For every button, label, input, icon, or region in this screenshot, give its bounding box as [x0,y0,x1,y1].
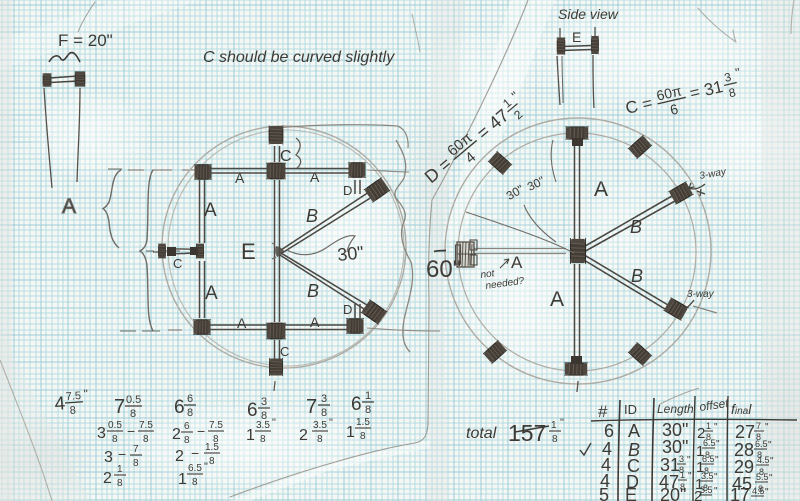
svg-text:4.5: 4.5 [757,455,770,465]
svg-text:A: A [310,169,320,185]
svg-text:": " [714,486,718,497]
svg-text:20": 20" [660,485,686,501]
svg-text:8: 8 [112,434,118,445]
svg-text:": " [688,471,692,482]
svg-text:B: B [630,217,642,237]
svg-text:0.5: 0.5 [108,420,122,431]
svg-text:6: 6 [184,421,190,432]
svg-text:7.5: 7.5 [209,420,223,431]
svg-text:": " [770,456,774,467]
svg-text:Side view: Side view [558,6,619,22]
svg-text:A: A [550,288,564,311]
svg-text:1: 1 [117,464,123,475]
svg-text:3.5: 3.5 [701,471,714,481]
svg-text:3.5: 3.5 [700,485,713,495]
svg-text:−: − [191,445,199,461]
svg-text:8: 8 [192,477,198,488]
svg-text:total: total [466,425,497,442]
svg-text:8: 8 [360,431,366,442]
svg-text:7.5: 7.5 [139,420,153,431]
svg-text:8: 8 [69,405,76,417]
svg-text:3.5: 3.5 [256,420,270,431]
svg-text:−: − [197,423,205,439]
svg-text:": " [204,461,208,473]
svg-text:5: 5 [599,485,609,501]
svg-text:E: E [241,239,256,264]
svg-text:3: 3 [679,454,684,464]
svg-text:Length: Length [657,402,694,416]
svg-text:4.5: 4.5 [752,486,765,496]
svg-text:": " [714,472,718,483]
svg-text:3-way: 3-way [687,289,715,300]
svg-text:8: 8 [321,407,327,419]
svg-text:8: 8 [209,456,215,467]
svg-text:5.5: 5.5 [756,472,769,482]
svg-text:": " [765,422,769,433]
svg-text:B: B [307,281,319,301]
svg-text:A: A [511,253,523,272]
svg-text:1: 1 [178,471,187,488]
svg-text:0.5: 0.5 [126,394,141,406]
svg-text:30": 30" [662,437,688,457]
svg-text:8: 8 [187,407,193,419]
svg-text:C: C [280,344,289,359]
svg-text:E: E [572,29,581,45]
svg-text:1: 1 [346,424,355,441]
svg-text:D: D [343,183,352,198]
svg-text:B: B [306,206,318,226]
svg-text:8: 8 [260,434,266,445]
svg-text:A: A [237,315,247,331]
svg-text:": " [714,422,718,433]
svg-text:6.5: 6.5 [188,463,202,474]
svg-text:": " [716,439,720,450]
svg-text:8: 8 [133,458,139,469]
svg-text:3.5: 3.5 [313,420,327,431]
svg-text:6: 6 [187,393,193,405]
svg-text:": " [768,440,772,451]
svg-text:2: 2 [299,427,308,444]
svg-text:": " [272,417,276,429]
svg-text:B: B [631,266,643,286]
svg-text:27: 27 [735,422,755,442]
svg-text:": " [329,417,333,429]
svg-text:E: E [625,485,637,501]
svg-text:6.5: 6.5 [702,454,715,464]
svg-text:1: 1 [365,390,371,402]
svg-text:8: 8 [184,435,190,446]
svg-text:6.5: 6.5 [755,439,768,449]
svg-text:7: 7 [306,396,317,418]
svg-text:C: C [173,256,182,271]
svg-text:6: 6 [351,394,362,415]
svg-text:A: A [628,421,640,441]
svg-text:4: 4 [54,393,66,415]
svg-text:2: 2 [103,470,112,487]
svg-text:1: 1 [680,470,685,480]
svg-text:": " [765,487,769,498]
svg-text:3: 3 [321,393,327,405]
svg-text:1.5: 1.5 [205,442,219,453]
svg-text:D: D [343,302,352,317]
svg-text:A: A [310,314,320,330]
svg-text:7: 7 [133,444,139,455]
svg-text:": " [687,455,691,466]
svg-text:A: A [204,200,217,221]
svg-text:3: 3 [97,425,106,442]
svg-text:6: 6 [174,397,185,418]
svg-text:6.5: 6.5 [703,438,716,448]
svg-text:1: 1 [706,421,711,431]
svg-text:7: 7 [114,396,125,418]
svg-text:7.5: 7.5 [65,390,81,403]
svg-text:A: A [235,170,245,186]
svg-text:8: 8 [143,434,149,445]
svg-text:ID: ID [624,402,637,417]
svg-text:8: 8 [117,478,123,489]
svg-text:30": 30" [336,242,364,265]
svg-text:C: C [280,148,292,165]
svg-text:157: 157 [508,420,546,446]
svg-text:": " [560,417,564,429]
svg-text:1: 1 [246,427,255,444]
svg-text:8: 8 [130,408,136,420]
svg-text:3: 3 [104,449,113,466]
svg-text:F = 20": F = 20" [58,31,113,50]
svg-text:": " [769,473,773,484]
svg-text:6: 6 [604,421,614,441]
svg-text:": " [715,455,719,466]
svg-text:A: A [205,283,218,304]
svg-text:1: 1 [551,420,557,431]
svg-text:17: 17 [730,485,750,501]
svg-text:8: 8 [552,434,558,445]
svg-text:C should be curved slightly: C should be curved slightly [203,49,395,66]
svg-text:1.5: 1.5 [356,417,370,428]
svg-text:7: 7 [756,421,761,431]
svg-text:6: 6 [247,400,258,421]
svg-text:8: 8 [365,404,371,416]
svg-text:#: # [598,402,608,421]
svg-text:60": 60" [426,256,461,283]
svg-text:3: 3 [261,396,267,408]
svg-text:2: 2 [172,426,181,443]
svg-text:8: 8 [317,434,323,445]
svg-text:2: 2 [175,448,184,465]
svg-text:A: A [62,195,76,218]
svg-text:−: − [118,446,126,462]
svg-text:−: − [127,423,135,439]
svg-text:A: A [594,178,608,201]
